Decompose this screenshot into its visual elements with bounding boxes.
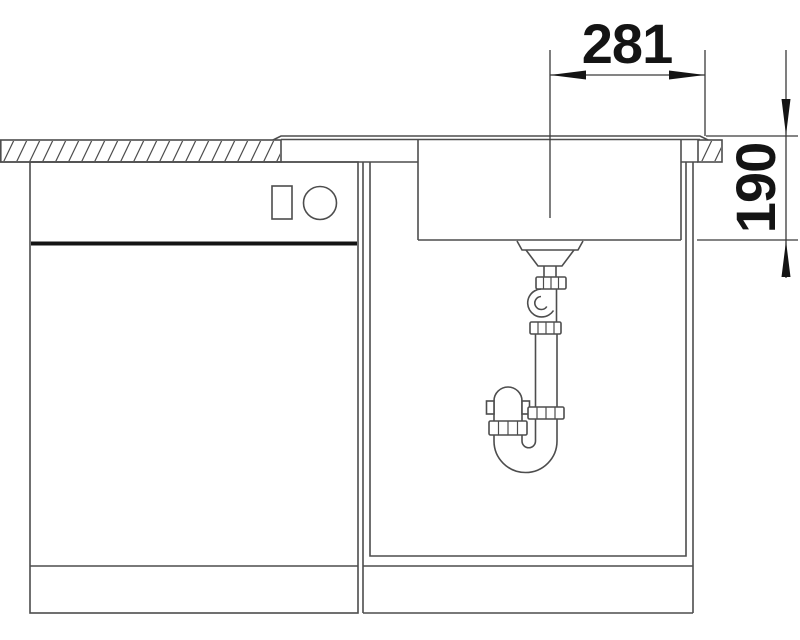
hatch-line [107, 139, 119, 163]
outlet-nut-flat-left [487, 401, 495, 414]
sink-base-cabinet [363, 162, 693, 613]
hatch-line [29, 139, 41, 163]
hatch-line [289, 139, 301, 163]
hatch-line [146, 139, 158, 163]
u-bend-inner [522, 441, 536, 448]
elbow-outer-curve [528, 289, 554, 317]
dishwasher-outline [30, 162, 358, 613]
drawing-canvas: 281 190 [0, 0, 800, 640]
elbow-inner-curve [535, 297, 547, 310]
siphon-assembly [487, 241, 584, 473]
hatch-line [68, 139, 80, 163]
hatch-line [224, 139, 236, 163]
coupling-nut-downpipe [528, 407, 564, 419]
hatch-line [211, 139, 223, 163]
sink-rim [273, 136, 708, 140]
hatch-line [94, 139, 106, 163]
hatch-line [701, 139, 713, 163]
arrowhead-up [782, 241, 791, 277]
coupling-nut-top [536, 277, 566, 289]
outlet-dome-cap [494, 387, 522, 401]
hatch-line [42, 139, 54, 163]
hatch-line [55, 139, 67, 163]
hatch-line [263, 139, 275, 163]
strainer-cup [526, 250, 574, 266]
control-knob [304, 187, 337, 220]
control-switch [272, 186, 292, 219]
hatch-line [237, 139, 249, 163]
elbow-joint [528, 289, 557, 322]
countertop-left-hatching [0, 139, 301, 163]
dimension-depth: 190 [697, 50, 798, 278]
dimension-width-label: 281 [582, 12, 672, 75]
dimension-depth-label: 190 [724, 143, 787, 233]
hatch-line [198, 139, 210, 163]
hatch-line [16, 139, 28, 163]
arrowhead-down [782, 99, 791, 135]
coupling-nut-outlet-arm [489, 421, 527, 435]
sink-cabinet-technical-drawing: 281 190 [0, 0, 800, 640]
hatch-line [159, 139, 171, 163]
hatch-line [120, 139, 132, 163]
arrowhead-right [669, 71, 705, 80]
u-bend-outer [494, 441, 557, 473]
hatch-line [81, 139, 93, 163]
hatch-line [172, 139, 184, 163]
coupling-nut-middle [530, 322, 561, 334]
countertop-left [0, 139, 301, 163]
hatch-line [133, 139, 145, 163]
hatch-line [250, 139, 262, 163]
dishwasher-cabinet [30, 162, 358, 613]
strainer-flange [517, 241, 583, 250]
hatch-line [3, 139, 15, 163]
arrowhead-left [550, 71, 586, 80]
hatch-line [185, 139, 197, 163]
